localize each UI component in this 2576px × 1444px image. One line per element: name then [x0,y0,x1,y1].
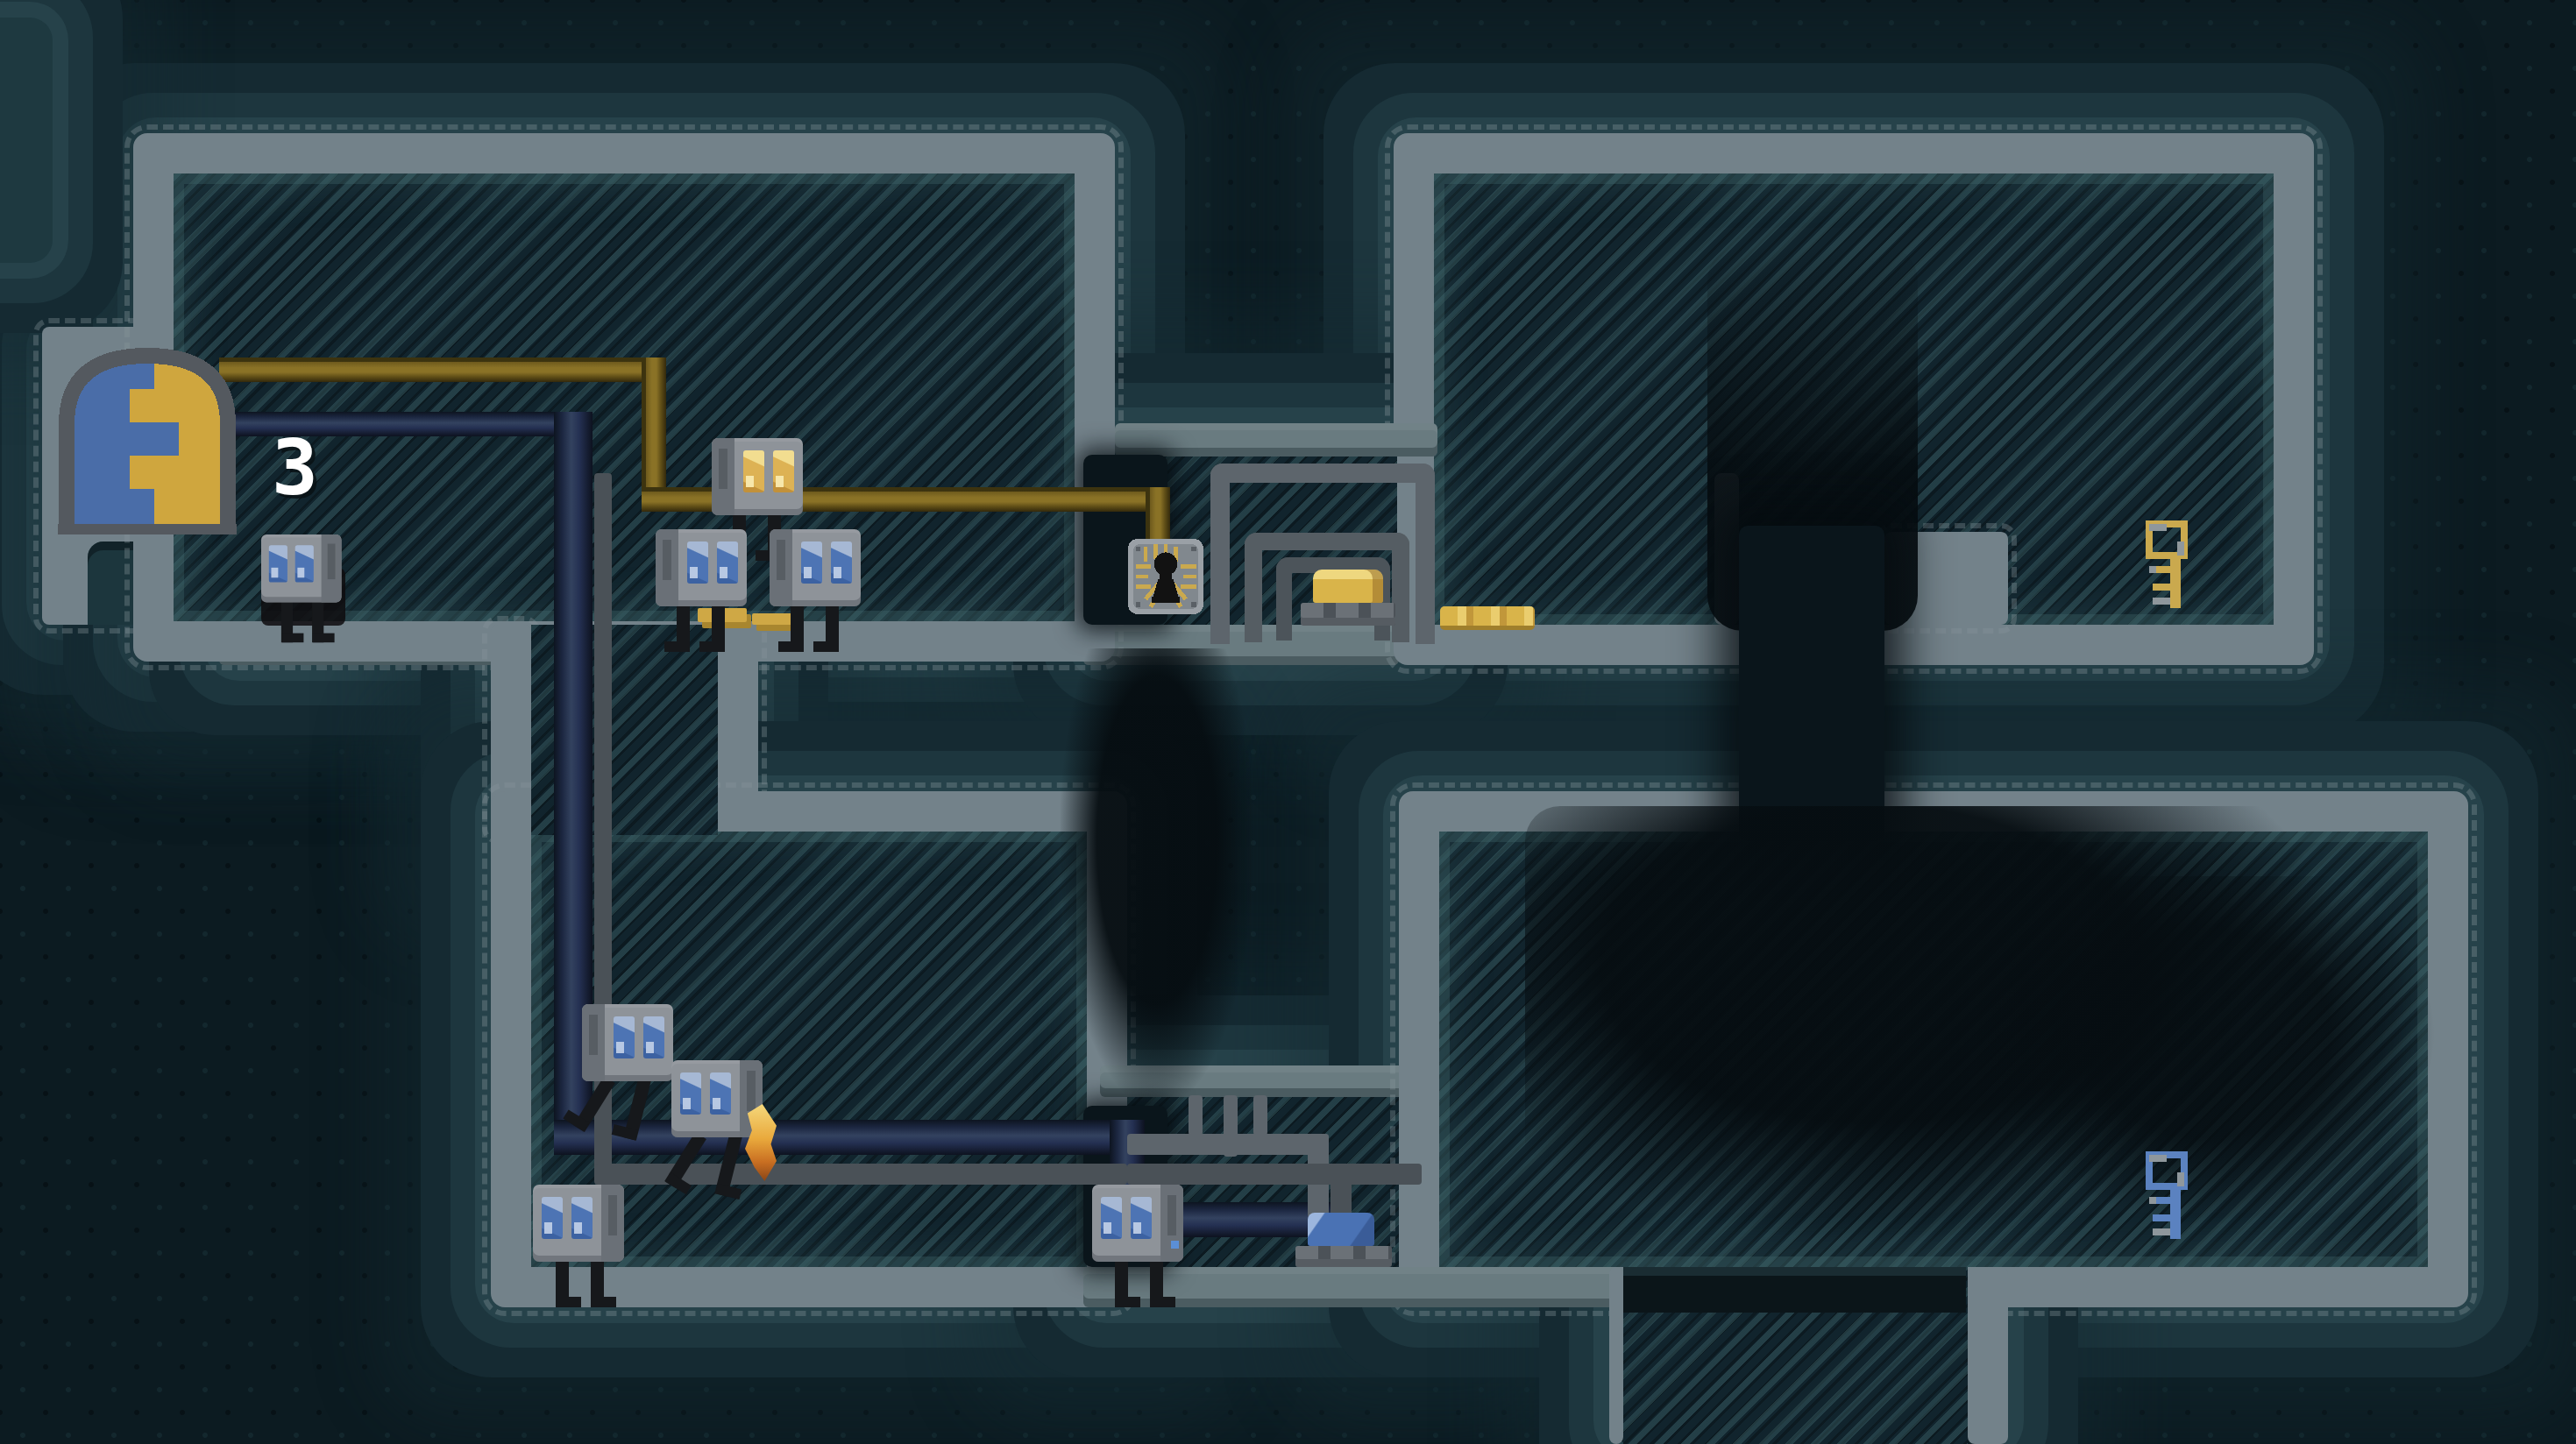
robot-leg [591,1260,604,1307]
robot-side-panel [712,438,734,515]
robot-body [656,529,747,606]
robot-eye [801,541,822,584]
robot-vent-slot [589,1015,598,1055]
robot-leg [281,601,293,643]
robot-leg [712,605,725,652]
robot-vent-slot [747,1071,756,1111]
robot-eye [295,545,314,582]
robot-leg [714,1134,742,1197]
robot-jumping-with-flame[interactable] [671,1060,763,1192]
robot-eye [571,1197,593,1239]
robot-side-panel [770,529,792,606]
robot-eye [542,1197,563,1239]
robot-leg [664,1132,706,1188]
robot-by-door[interactable] [261,534,342,650]
pipe-elbow-h1 [1127,1134,1329,1155]
robot-leg [677,605,690,652]
robot-eye [717,541,738,584]
robot-side-panel [322,534,342,602]
blue-ingot-base [1295,1246,1392,1267]
robot-status-led [1171,1241,1179,1249]
pipe-elbow-v2 [1331,1164,1352,1218]
robot-leg [312,601,323,643]
robot-body [1092,1185,1183,1262]
robot-vent-slot [608,1195,617,1235]
cave-shadow-mid [1061,648,1253,1104]
robot-eye [680,1072,701,1115]
robot-body [533,1185,624,1262]
corridor-top-ceiling [1115,423,1437,457]
pit-slot [1623,1267,1966,1313]
blue-key[interactable] [2139,1151,2195,1242]
robot-lower-corridor[interactable] [1092,1185,1183,1316]
robot-side-panel [1160,1185,1183,1262]
chasm-pit-top-right [1739,526,1884,841]
cave-shadow-bottom-right-room-2 [1981,876,2437,1227]
robot-eye [743,450,764,492]
robot-eye [269,545,287,582]
robot-body [261,534,342,602]
robot-eye [773,450,794,492]
gold-ingot-base [1301,603,1395,626]
robot-eye [1101,1197,1122,1239]
robot-vent-slot [663,540,671,580]
robot-pair-right[interactable] [770,529,861,661]
pipe-stub-1 [1189,1095,1203,1136]
robot-side-panel [601,1185,624,1262]
robot-lower-left[interactable] [533,1185,624,1316]
robot-body [582,1004,673,1081]
robot-leg [1115,1260,1128,1307]
robot-body [671,1060,763,1137]
robot-leg [623,1078,650,1141]
robot-side-panel [582,1004,605,1081]
gold-ingot[interactable] [1313,570,1383,603]
exit-door[interactable] [54,343,240,534]
robot-eye [614,1016,635,1058]
rock-outcrop-left-edge [0,18,53,263]
robot-eye [710,1072,731,1115]
game-viewport: 3 [0,0,2576,1444]
pipe-stub-3 [1253,1095,1267,1136]
robot-leg [1150,1260,1163,1307]
robot-leg [556,1260,569,1307]
gold-coin[interactable] [1440,606,1535,630]
robot-vent-slot [719,449,727,489]
door-count-badge: 3 [272,429,318,506]
robot-pair-left[interactable] [656,529,747,661]
robot-eye [687,541,708,584]
robot-vent-slot [777,540,785,580]
gold-key[interactable] [2139,520,2195,612]
robot-body [770,529,861,606]
robot-eye [831,541,852,584]
gold-wire-segment-1 [219,357,666,382]
blue-ingot[interactable] [1308,1213,1374,1246]
robot-eye [1131,1197,1152,1239]
robot-vent-slot [328,544,336,579]
robot-body [712,438,803,515]
robot-leg [791,605,804,652]
pit-wall-right [1968,1267,2008,1444]
robot-jumping-upper[interactable] [582,1004,673,1136]
pit-wall-left [1609,1267,1623,1444]
robot-leg [826,605,839,652]
robot-vent-slot [1167,1195,1176,1235]
circuit-spider-chip[interactable] [1125,536,1206,617]
pipe-elbow-h2 [1127,1164,1422,1185]
robot-side-panel [656,529,678,606]
robot-eye [643,1016,664,1058]
